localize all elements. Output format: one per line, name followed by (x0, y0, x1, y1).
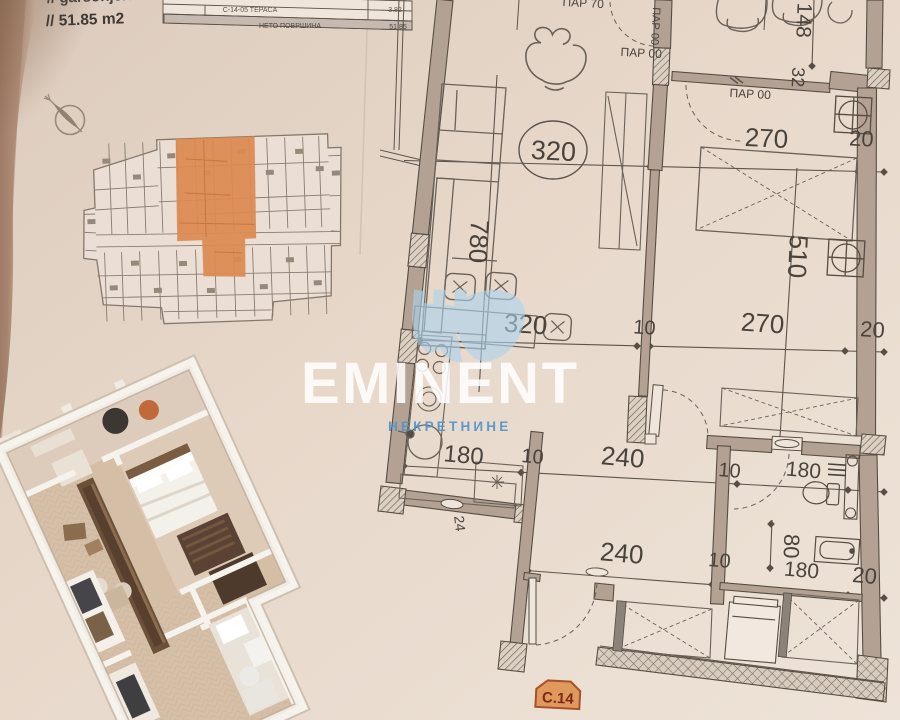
svg-text:320: 320 (530, 135, 577, 167)
svg-text:510: 510 (782, 234, 814, 279)
svg-text:20: 20 (851, 562, 878, 589)
svg-text:ПАР 00: ПАР 00 (729, 86, 771, 102)
svg-text:3.82: 3.82 (388, 7, 402, 14)
svg-text:32: 32 (788, 67, 809, 88)
svg-text:20: 20 (859, 316, 885, 343)
svg-text:10: 10 (520, 445, 544, 469)
svg-text:EMINENT: EMINENT (301, 351, 580, 416)
svg-text:240: 240 (599, 536, 645, 570)
svg-text:C-14-05 TEPACA: C-14-05 TEPACA (223, 7, 278, 14)
svg-text:24: 24 (451, 515, 469, 532)
svg-text:ПАР 00: ПАР 00 (648, 7, 662, 45)
svg-text:НЕТО ПОВРШИНА: НЕТО ПОВРШИНА (259, 23, 321, 30)
svg-text:80: 80 (779, 534, 805, 559)
svg-text:180: 180 (443, 440, 485, 470)
svg-text:10: 10 (707, 549, 731, 573)
svg-text:148: 148 (791, 2, 815, 38)
svg-text:240: 240 (600, 440, 646, 474)
svg-text:НЕКРЕТНИНЕ: НЕКРЕТНИНЕ (388, 419, 511, 434)
svg-text:780: 780 (463, 219, 495, 264)
svg-text:270: 270 (744, 122, 789, 154)
svg-text:180: 180 (783, 558, 820, 584)
svg-text:10: 10 (633, 316, 657, 339)
svg-text:C.14: C.14 (542, 689, 575, 708)
svg-text:180: 180 (785, 458, 822, 484)
svg-text:20: 20 (849, 125, 875, 151)
svg-text:270: 270 (740, 307, 785, 340)
svg-text:10: 10 (717, 459, 741, 483)
svg-text:// 51.85 m2: // 51.85 m2 (46, 10, 125, 30)
svg-text:ПАР 00: ПАР 00 (620, 45, 662, 61)
